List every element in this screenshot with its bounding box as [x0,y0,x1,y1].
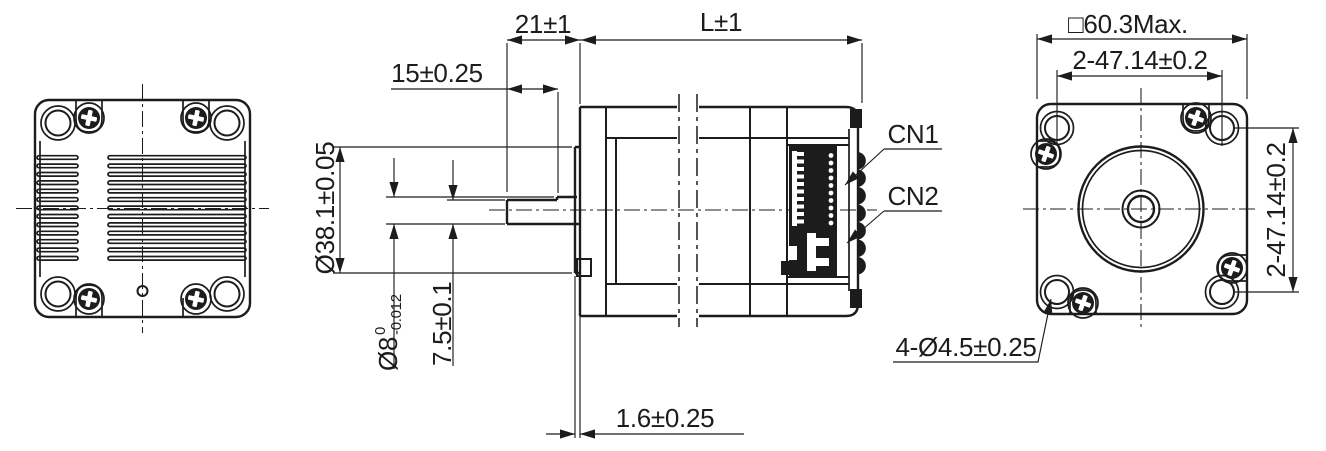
contact [829,168,834,173]
dim-hole-pitch-horizontal: 2-47.14±0.2 [1072,45,1207,75]
arrowhead [389,224,398,239]
vent-fin [108,164,246,168]
motor-dimension-drawing: 21±1 L±1 15±0.25 Ø38.1±0.05 Ø8 0 -0.012 … [0,0,1326,451]
arrowhead [1037,34,1052,43]
vent-fin [108,248,246,252]
pin [797,212,804,216]
vent-fin [108,181,246,185]
dim-shaft-projection: 21±1 [515,9,571,39]
arrowhead [1232,34,1247,43]
arrowhead [581,35,596,44]
contact [829,161,834,166]
vent-fin [108,206,246,210]
contact [829,221,834,226]
arrowhead [448,224,457,239]
pin [797,152,804,156]
arrowhead [543,84,558,93]
vent-fin [108,257,246,261]
vent-fin [108,173,246,177]
vent-fin [108,156,246,160]
vent-fin [108,231,246,235]
arrowhead [1207,71,1222,80]
contact [829,183,834,188]
label-cn2: CN2 [887,181,938,211]
pin [797,205,804,209]
pin [797,220,804,224]
side-view [489,94,877,327]
pin [797,160,804,164]
arrowhead [847,35,862,44]
label-cn1: CN1 [887,119,938,149]
dim-hole-pitch-vertical: 2-47.14±0.2 [1261,142,1291,277]
front-corner-holes [1041,112,1239,309]
vent-fin [37,223,78,227]
arrowhead [1288,277,1297,292]
pin [797,197,804,201]
arrowhead [1057,71,1072,80]
vent-fin [37,189,78,193]
vent-fin [108,198,246,202]
vent-fin [37,198,78,202]
contact [829,176,834,181]
pin [797,167,804,171]
connector-block [781,145,849,277]
pin [797,190,804,194]
vent-fin [37,231,78,235]
contact [829,206,834,211]
arrowhead [565,35,580,44]
arrowhead [580,429,595,438]
dim-frame-size: □60.3Max. [1068,9,1188,39]
vent-fin [37,164,78,168]
vent-fin [37,156,78,160]
dim-flat-length: 15±0.25 [391,58,483,88]
vent-fin [37,257,78,261]
vent-fin [108,240,246,244]
dim-body-length: L±1 [700,7,742,37]
rear-vent-fins-right [108,156,246,260]
rear-vent-fins-left [37,156,78,260]
vent-fin [37,215,78,219]
svg-text:-0.012: -0.012 [388,294,405,335]
arrowhead [507,84,522,93]
vent-fin [37,248,78,252]
pin [797,182,804,186]
pilot-boss [575,107,580,316]
contact [829,213,834,218]
rear-heatsink-scallops [858,152,866,275]
dim-flat-height: 7.5±0.1 [427,282,457,366]
svg-text:Ø8: Ø8 [373,337,403,371]
front-screws [1031,103,1247,318]
vent-fin [37,173,78,177]
vent-fin [37,181,78,185]
arrowhead [389,182,398,197]
dim-pilot-thickness: 1.6±0.25 [616,403,715,433]
rear-view [16,84,269,333]
dim-mounting-holes: 4-Ø4.5±0.25 [895,332,1036,362]
vent-fin [37,206,78,210]
vent-fin [37,240,78,244]
dim-shaft-diameter: Ø8 0 -0.012 [372,294,405,371]
vent-fin [108,215,246,219]
pin [797,175,804,179]
svg-text:0: 0 [372,327,389,335]
arrowhead [560,429,575,438]
vent-fin [108,223,246,227]
arrowhead [448,185,457,200]
contact [829,153,834,158]
contact [829,191,834,196]
rear-centerlines [16,84,269,333]
contact [829,198,834,203]
dim-pilot-diameter: Ø38.1±0.05 [310,142,340,275]
arrowhead [1288,128,1297,143]
vent-fin [108,189,246,193]
